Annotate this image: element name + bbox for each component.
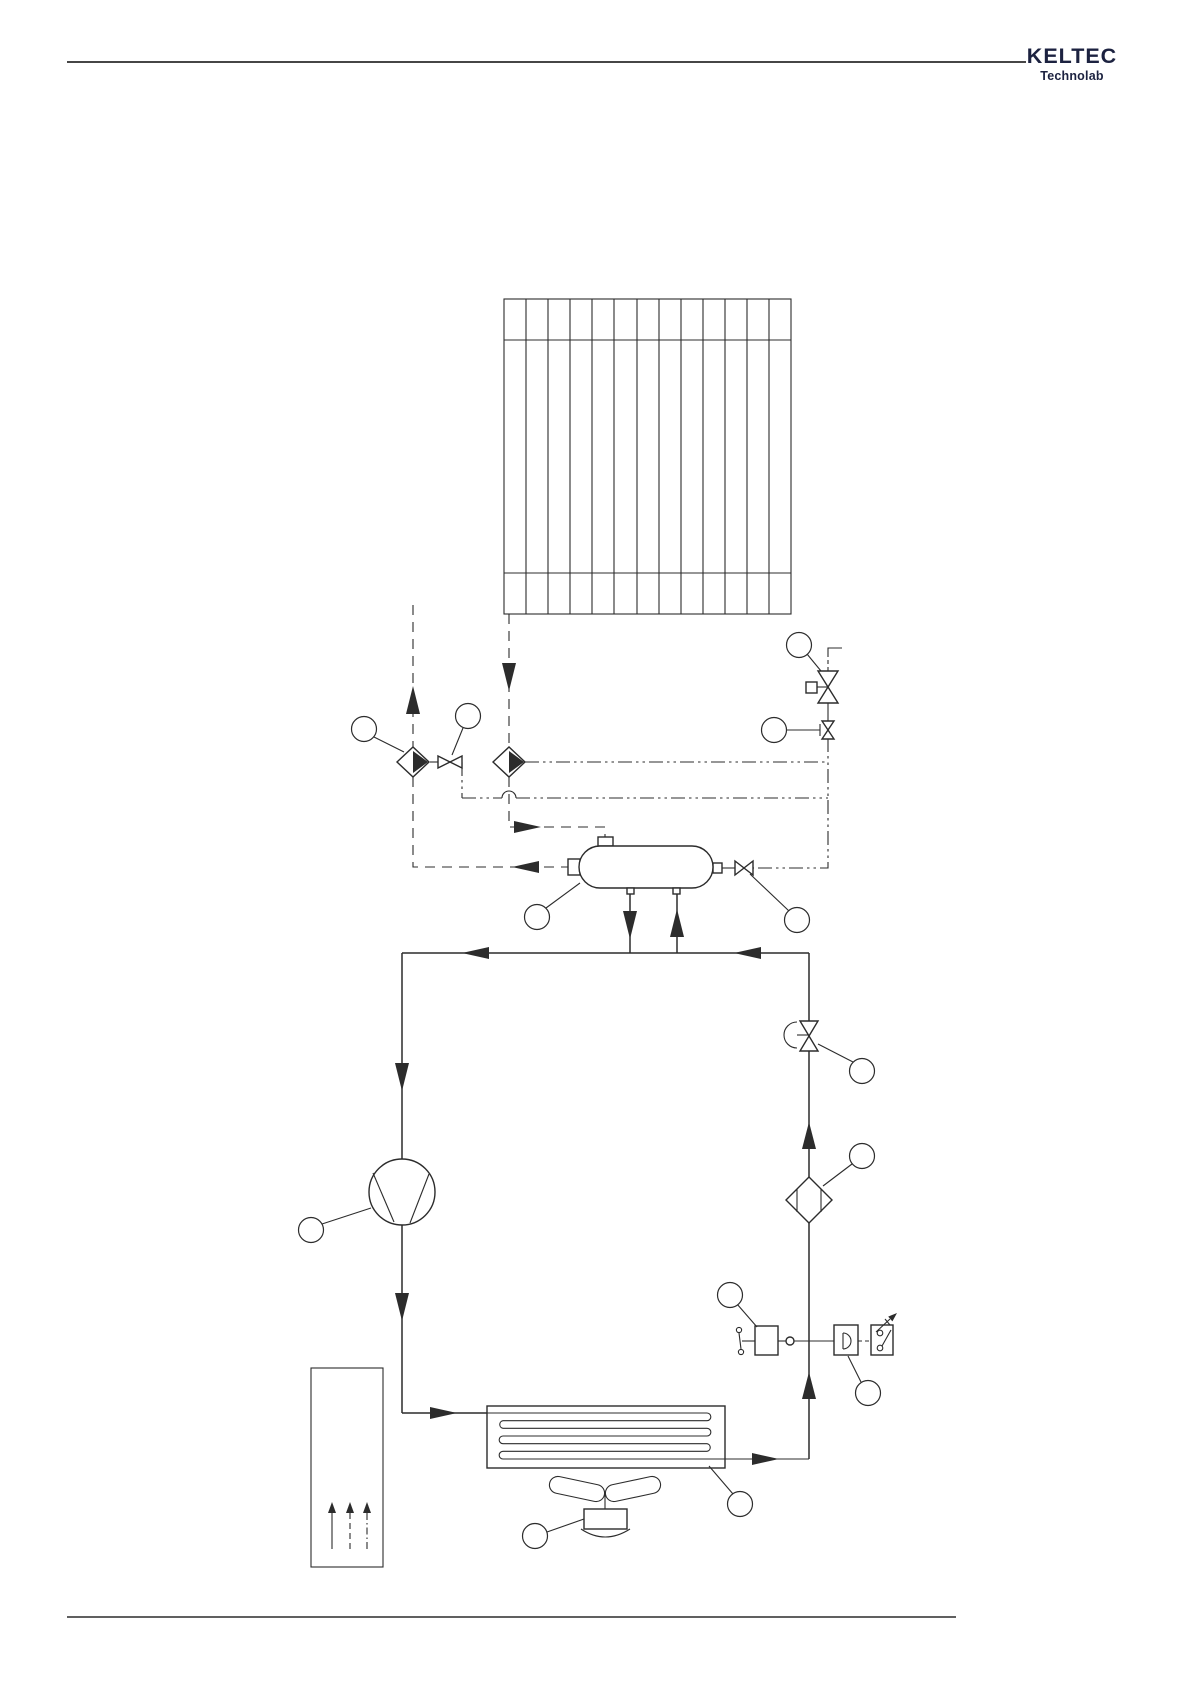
flow-arrow-left-icon (734, 947, 761, 959)
callout-balloon (785, 908, 810, 933)
callout-balloon (523, 1524, 548, 1549)
pilot-valve (786, 721, 834, 739)
airflow-arrow-solid-icon (328, 1502, 336, 1513)
switch-pin-icon (738, 1349, 743, 1354)
callout-balloon (850, 1059, 875, 1084)
fan-motor (584, 1509, 627, 1529)
separator-shell (579, 846, 713, 888)
separator-pipes (623, 894, 684, 953)
flow-arrow-right-icon (752, 1453, 779, 1465)
switch-pin-icon (736, 1327, 741, 1332)
flow-arrow-down-icon (502, 663, 516, 691)
pressure-switch (834, 1325, 858, 1355)
schematic-canvas (0, 0, 1191, 1684)
callout-balloon (762, 718, 787, 743)
airflow-arrow-dashed-icon (346, 1502, 354, 1513)
flow-arrow-left-icon (462, 947, 489, 959)
flow-arrow-down-icon (395, 1293, 409, 1321)
flow-arrow-up-icon (802, 1122, 816, 1149)
separator-bottom-nozzle (627, 888, 634, 894)
flow-arrow-right-icon (514, 821, 541, 833)
separator-drain-valve (722, 861, 753, 875)
vent-outlet-icon (828, 648, 842, 655)
cooling-fan (548, 1475, 662, 1537)
callout-balloon (787, 633, 812, 658)
junction-port-icon (786, 1337, 794, 1345)
pressure-regulator-assembly (736, 1313, 897, 1355)
valve-handle-icon (784, 1022, 797, 1048)
separator-top-nozzle (598, 837, 613, 846)
callout-balloon (718, 1283, 743, 1308)
callout-balloon (850, 1144, 875, 1169)
flow-arrow-down-icon (395, 1063, 409, 1091)
callout-balloon (728, 1492, 753, 1517)
main-circuit-piping (395, 947, 816, 1459)
flow-arrow-up-icon (670, 909, 684, 937)
solenoid-actuator-icon (806, 682, 817, 693)
flow-arrow-up-icon (802, 1372, 816, 1399)
separator-right-nozzle (713, 863, 722, 873)
separator-left-nozzle (568, 859, 580, 875)
callout-balloon (352, 717, 377, 742)
compressor (369, 1159, 435, 1225)
pressure-regulator (755, 1326, 778, 1355)
fan-blade-icon (604, 1475, 662, 1503)
purge-air-lines (406, 605, 605, 873)
separator-bottom-nozzle (673, 888, 680, 894)
flow-arrow-right-icon (430, 1407, 457, 1419)
water-separator (568, 837, 722, 894)
callout-balloon (456, 704, 481, 729)
callout-balloon (525, 905, 550, 930)
callout-balloon (299, 1218, 324, 1243)
fan-blade-icon (548, 1475, 606, 1503)
air-duct (311, 1368, 383, 1567)
regeneration-air-filter (493, 747, 525, 777)
aftercooler-radiator (504, 299, 791, 614)
cooling-coil (487, 1406, 809, 1468)
flow-arrow-up-icon (406, 686, 420, 714)
flow-arrow-down-icon (623, 911, 637, 939)
purge-needle-valve (438, 756, 462, 768)
flow-arrow-left-icon (512, 861, 539, 873)
shutoff-valve (784, 1021, 818, 1051)
document-page: KELTEC Technolab (0, 0, 1191, 1684)
airflow-arrow-dashdot-icon (363, 1502, 371, 1513)
callout-balloon (856, 1381, 881, 1406)
